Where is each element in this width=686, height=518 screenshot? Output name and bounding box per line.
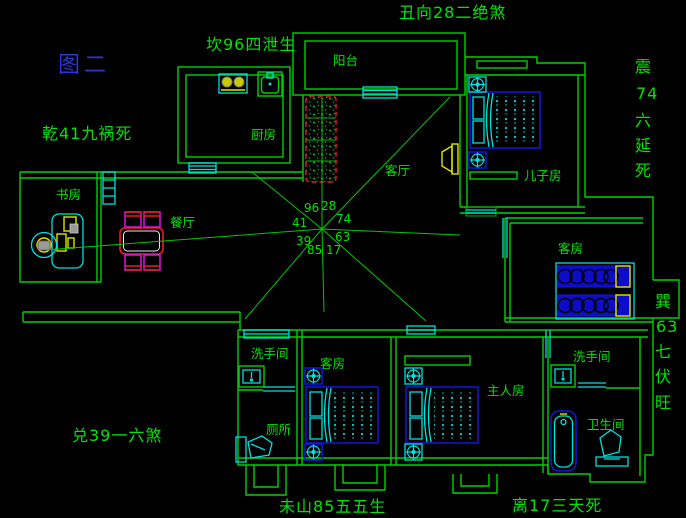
plant-row [306, 96, 336, 182]
room-label-toilet-sw: 厕所 [266, 422, 291, 437]
east-upper-char: 延 [635, 136, 652, 155]
cad-floorplan-canvas: 图二 坎96四泄生 丑向28二绝煞 乾41九祸死 兑39一六煞 未山85五五生 … [0, 0, 686, 518]
east-lower-char: 巽 [655, 292, 672, 311]
east-lower-char: 63 [656, 317, 678, 336]
dining-top-wall [20, 172, 303, 178]
dining-bottom-wall [23, 312, 240, 330]
son-room-window [466, 207, 496, 216]
bathroom-se-door [578, 383, 606, 387]
east-lower-char: 旺 [655, 393, 672, 412]
toilet-se [596, 430, 628, 466]
room-label-balcony: 阳台 [333, 53, 358, 68]
kitchen-inner-wall [186, 75, 283, 157]
annotation-south: 未山85五五生 [279, 497, 386, 516]
compass-number-s-right: 17 [326, 243, 341, 257]
figure-label: 图二 [58, 53, 110, 78]
door-bay-1 [246, 465, 286, 495]
room-label-bathroom-se: 卫生间 [587, 417, 625, 432]
compass-number-n-right: 28 [321, 199, 336, 213]
annotation-southwest: 兑39一六煞 [72, 426, 162, 445]
room-label-kitchen: 厨房 [251, 127, 276, 142]
east-upper-char: 74 [636, 84, 658, 103]
son-desk-shelf [470, 172, 517, 179]
room-label-son: 儿子房 [524, 168, 562, 183]
compass-number-n-left: 96 [304, 201, 319, 215]
compass-number-ne: 74 [336, 212, 351, 226]
sink-se [551, 365, 575, 387]
compass-number-s-left: 85 [307, 243, 322, 257]
bathtub [551, 411, 576, 471]
room-label-guest-south: 客房 [320, 356, 345, 371]
room-divider-walls [238, 388, 640, 390]
speaker [442, 144, 458, 174]
room-label-study: 书房 [56, 187, 81, 202]
toilet-sw-door [263, 387, 295, 391]
dining-chairs [125, 212, 160, 270]
study-desk [52, 214, 83, 268]
annotation-east-lower: 巽 63 七 伏 旺 [655, 292, 678, 412]
east-upper-char: 六 [635, 111, 652, 130]
study-chair [32, 233, 57, 258]
floorplan-drawing: 图二 坎96四泄生 丑向28二绝煞 乾41九祸死 兑39一六煞 未山85五五生 … [0, 0, 686, 518]
annotation-east-upper: 震 74 六 延 死 [635, 57, 658, 180]
balcony-inner-wall [305, 41, 457, 89]
room-label-washroom-se: 洗手间 [573, 349, 611, 364]
compass-number-nw: 41 [292, 216, 307, 230]
east-upper-char: 震 [635, 57, 652, 76]
annotation-north-left: 坎96四泄生 [206, 35, 296, 54]
master-shelf [405, 356, 470, 365]
annotation-northwest: 乾41九祸死 [42, 124, 132, 143]
room-label-dining: 餐厅 [170, 215, 195, 230]
room-label-washroom-sw: 洗手间 [251, 346, 289, 361]
master-window [407, 326, 435, 334]
sink-sw [239, 366, 264, 387]
door-bay-3 [453, 474, 497, 493]
room-label-master: 主人房 [487, 383, 525, 398]
compass-number-e: 63 [335, 230, 350, 244]
room-label-guest-east: 客房 [558, 241, 583, 256]
room-label-living: 客厅 [385, 163, 410, 178]
son-closet-shelf [477, 61, 527, 68]
guest-south-bed [305, 368, 378, 460]
guest-east-beds [556, 263, 634, 319]
east-lower-char: 伏 [655, 367, 672, 386]
stove [219, 74, 247, 93]
annotation-north: 丑向28二绝煞 [399, 3, 506, 22]
door-bay-2 [335, 465, 385, 490]
east-lower-char: 七 [655, 342, 672, 361]
east-upper-char: 死 [635, 161, 652, 180]
son-bed [470, 92, 540, 148]
dining-table [120, 228, 163, 254]
annotation-southeast: 离17三天死 [512, 496, 602, 515]
balcony-outer-wall [293, 33, 465, 95]
study-flue-window [103, 172, 115, 204]
master-bed [405, 356, 478, 460]
south-block-top-wall [238, 330, 648, 337]
